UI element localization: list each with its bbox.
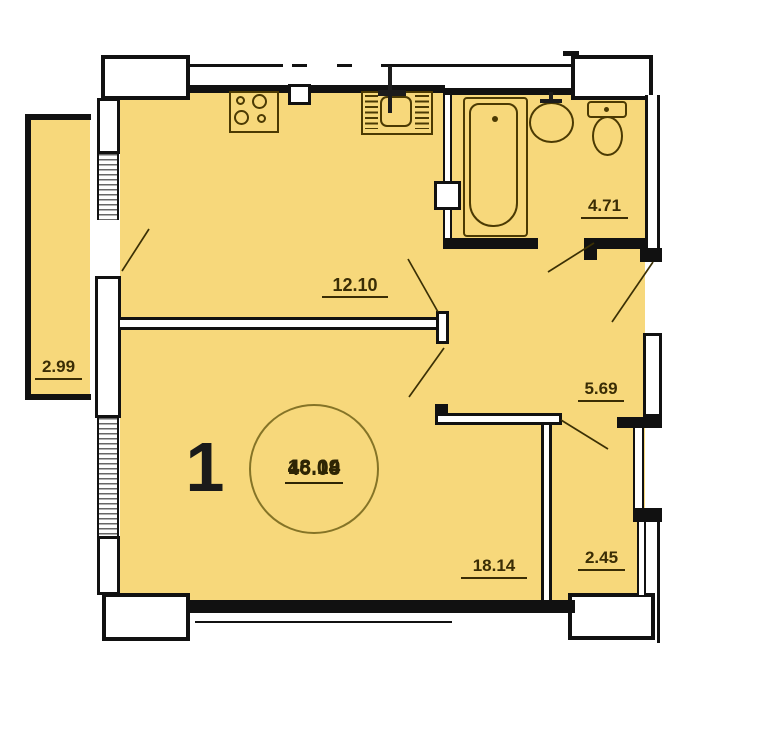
bathtub-drain: [492, 116, 498, 122]
bathroom-vent-box: [434, 181, 461, 210]
bathtub-icon: [463, 97, 528, 237]
wall-bottom-thin-line: [195, 621, 452, 623]
toilet-tank-dot: [604, 107, 609, 112]
wall-right-upper: [645, 95, 660, 248]
wall-left-upper: [97, 98, 120, 154]
counter-hatch: [415, 95, 429, 129]
wall-divider-end-cap: [436, 311, 449, 344]
balcony-wall-top: [25, 114, 91, 120]
wall-bathroom-bottom-step: [584, 249, 597, 260]
balcony-wall-bottom: [25, 394, 91, 400]
wall-hall-bottom: [435, 413, 562, 425]
balcony-area-label: 2.99: [35, 357, 82, 380]
living-room-area-label: 18.14: [461, 556, 527, 579]
window-balcony: [97, 154, 119, 220]
wall-bathroom-bottom-left: [443, 238, 538, 249]
wall-living-storage-divider: [541, 425, 552, 600]
washbasin-faucet-stem: [549, 92, 553, 101]
slab-line-dash-2: [337, 64, 352, 67]
slab-line-solid-right: [381, 64, 572, 67]
stove-burner-small-icon: [257, 114, 266, 123]
storage-area-label: 2.45: [578, 548, 625, 571]
sink-bowl: [380, 96, 412, 127]
apartment-fill: [120, 92, 645, 600]
bathroom-area-label: 4.71: [581, 196, 628, 219]
kitchen-area-label: 12.10: [322, 275, 388, 298]
kitchen-sink-icon: [361, 91, 433, 135]
wall-bathroom-top: [443, 88, 575, 95]
wall-left-lower: [97, 536, 120, 595]
wall-tick: [563, 51, 579, 56]
wall-storage-right-lower: [637, 522, 646, 595]
washbasin-icon: [529, 102, 574, 143]
wall-right-middle: [643, 333, 662, 417]
slab-line-dash-1: [292, 64, 307, 67]
wall-hall-flange: [435, 404, 448, 414]
stove-icon: [229, 91, 279, 133]
wall-left-middle: [95, 276, 121, 418]
stove-burner-large-icon: [234, 110, 249, 125]
wall-right-thin-line: [657, 520, 660, 643]
floor-plan: 2.99 12.10 4.71 5.69 18.14 2.45 1 18.14 …: [0, 0, 764, 744]
pillar-top-right: [571, 55, 653, 100]
wall-storage-right-upper: [633, 428, 644, 510]
stove-burner-small-icon: [236, 96, 245, 105]
balcony-wall-left: [25, 114, 31, 400]
toilet-bowl-icon: [592, 116, 623, 156]
window-living-room: [97, 418, 119, 538]
pillar-bottom-right: [568, 593, 655, 640]
stove-burner-large-icon: [252, 94, 267, 109]
counter-hatch: [365, 95, 378, 129]
wall-kitchen-living-divider: [120, 317, 436, 330]
kitchen-vent-box: [288, 84, 311, 105]
wall-bathroom-bottom-right: [584, 238, 646, 249]
sink-faucet-bar: [378, 90, 406, 96]
pillar-top-left: [101, 55, 190, 100]
slab-line-solid-left: [190, 64, 283, 67]
wall-bathroom-left: [443, 95, 452, 245]
room-count-number: 1: [176, 428, 234, 506]
balcony-fill: [28, 117, 90, 398]
stamp-total-area: 46.08: [288, 456, 341, 482]
pillar-bottom-left: [102, 593, 190, 641]
area-stamp: 18.14 43.09 46.08: [249, 404, 379, 534]
hallway-area-label: 5.69: [578, 379, 624, 402]
wall-hall-bottom-right: [617, 417, 662, 428]
wall-bottom: [188, 600, 575, 613]
wall-entrance-jamb: [640, 248, 662, 262]
